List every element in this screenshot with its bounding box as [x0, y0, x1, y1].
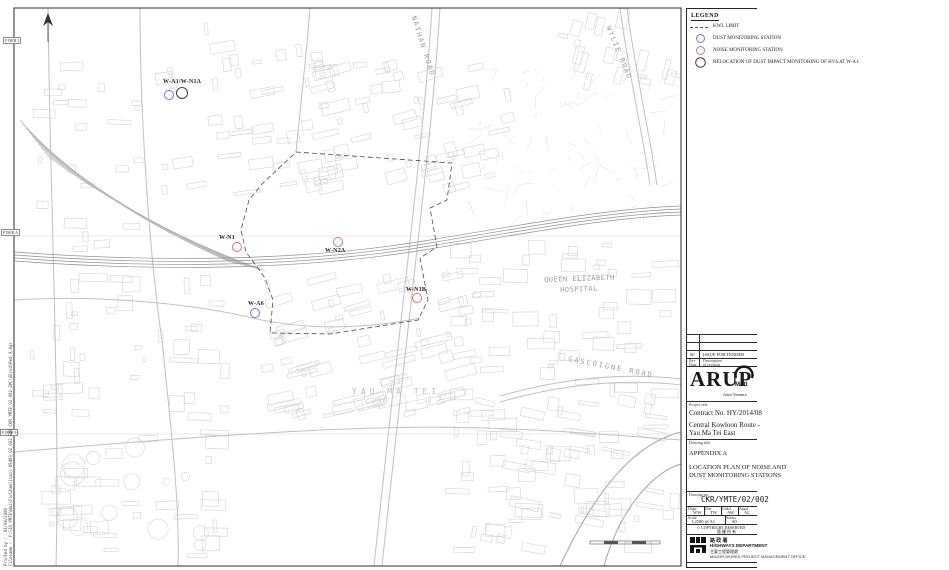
map-canvas — [0, 0, 949, 570]
rail-corridor — [14, 206, 681, 267]
drawing-title-line2: DUST MONITORING STATIONS — [689, 472, 781, 479]
plot-info: Printed by : 03/04/2008 Filename : F:\10… — [3, 316, 13, 566]
revision-number: 00 — [690, 352, 695, 357]
highways-department-logo — [690, 537, 708, 554]
drawing-title-label: Drawing title — [689, 441, 710, 445]
title-block: LEGEND KWL LIMIT DUST MONITORING STATION… — [686, 8, 757, 568]
noise-circle-symbol — [695, 45, 706, 56]
division-name: MAJOR WORKS PROJECT MANAGEMENT OFFICE — [710, 554, 805, 559]
station-noise-circle — [413, 294, 422, 303]
station-label: W-N1B — [406, 287, 426, 293]
district-label: YAU MA TEI — [352, 387, 440, 396]
drawing-number: CKR/YMTE/02/002 — [701, 495, 769, 504]
station-label: W-N1 — [219, 235, 235, 241]
department-name: HIGHWAYS DEPARTMENT — [710, 543, 767, 548]
place-label-hospital: HOSPITAL — [560, 285, 598, 294]
legend-item-label: RELOCATION OF DUST IMPACT MONITORING OF … — [713, 60, 858, 65]
grid-ref: F19EB 1 — [3, 37, 21, 44]
legend-title: LEGEND — [691, 13, 719, 21]
project-title-label: Project title — [689, 403, 708, 407]
drawing-title-line1: LOCATION PLAN OF NOISE AND — [689, 464, 786, 471]
station-noise-circle — [334, 238, 343, 247]
appendix-title: APPENDIX A — [689, 450, 727, 457]
legend-item-label: KWL LIMIT — [713, 24, 739, 29]
joint-venture-label: Joint Venture — [723, 392, 747, 397]
revision-description: ISSUE FOR TENDER — [703, 352, 744, 357]
station-label: W-N2A — [325, 248, 345, 254]
north-arrow-icon — [43, 13, 53, 42]
mott-macdonald-logo-text: Mott — [735, 382, 748, 388]
station-dust-circle — [165, 91, 174, 100]
filename-label: Filename : — [8, 542, 13, 566]
project-name-line2: Yau Ma Tei East — [689, 430, 735, 438]
grid-ref: F19EB A — [1, 229, 20, 236]
station-label: W-A1/W-N1A — [163, 79, 201, 85]
station-label: W-A6 — [248, 301, 264, 307]
legend-item-label: NOISE MONITORING STATION — [713, 48, 783, 53]
station-relocation-circle — [177, 88, 188, 99]
filename-value: F:\10_YMTE\Wai\ForGham\(can)-89403_02_00… — [8, 342, 13, 537]
contract-number: Contract No. HY/2014/08 — [689, 410, 762, 418]
station-dust-circle — [251, 309, 260, 318]
drawing-sheet: W-A1/W-N1A W-N1 W-N2A W-N1B W-A6 NATHAN … — [0, 0, 949, 570]
relocation-circle-symbol — [694, 56, 707, 69]
works-limit-symbol — [690, 27, 708, 28]
station-noise-circle — [233, 243, 242, 252]
dust-circle-symbol — [695, 33, 706, 44]
legend-item-label: DUST MONITORING STATION — [713, 36, 781, 41]
